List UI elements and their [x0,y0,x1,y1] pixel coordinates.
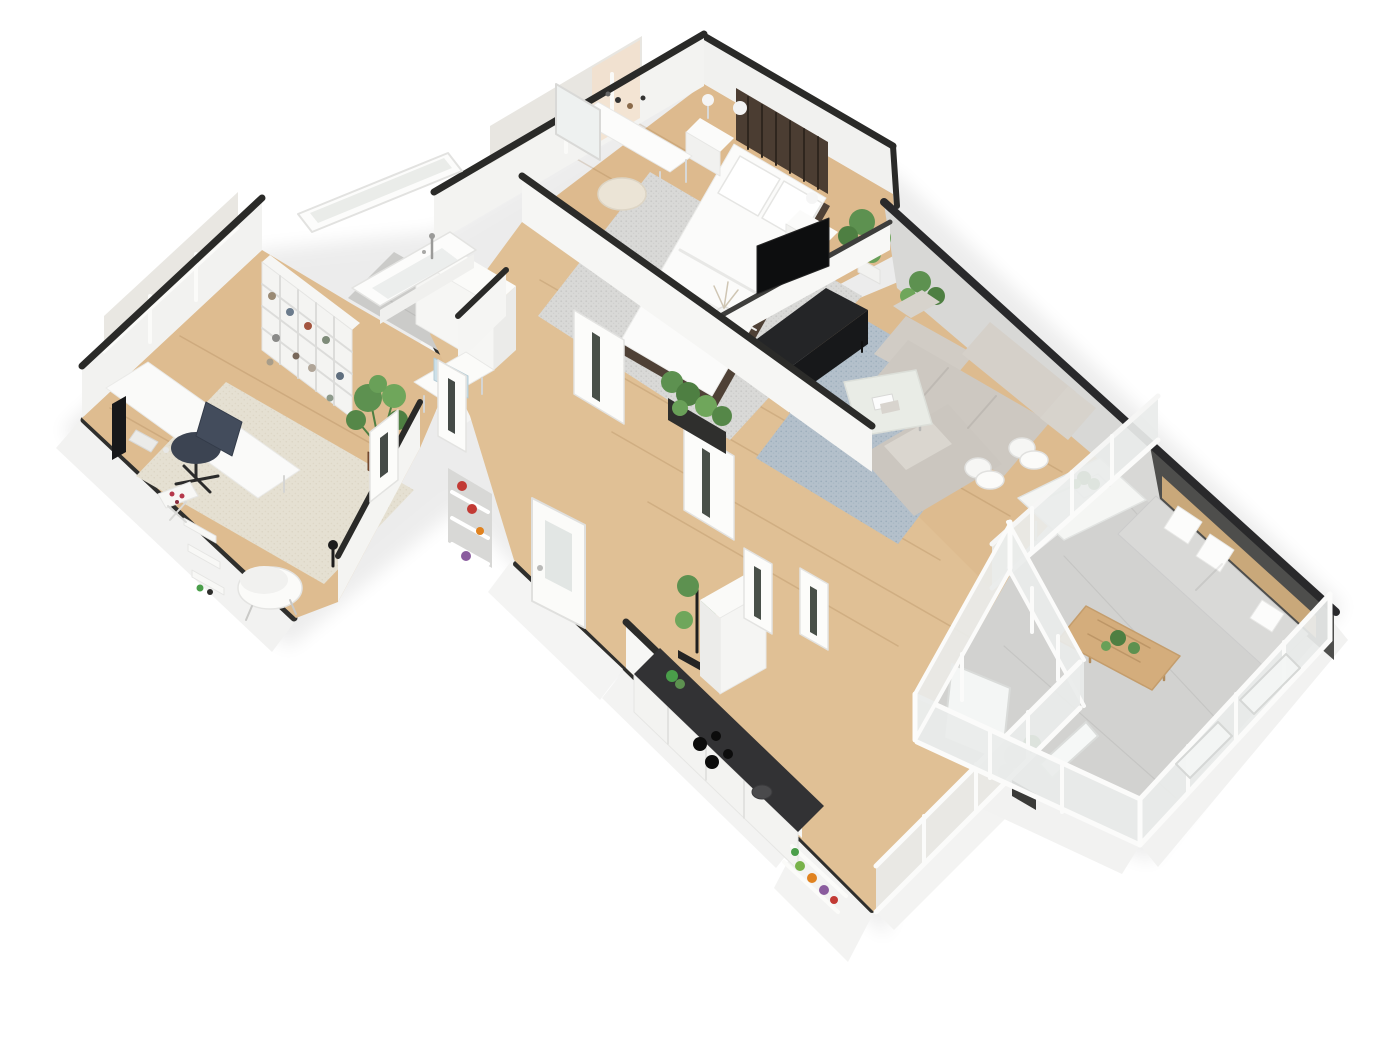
balcony-table-plants [1101,641,1111,651]
nightstand-left-lamp [702,94,714,106]
bookshelf-books [327,395,334,402]
vanity-cosmetics [606,92,611,97]
wall-bedroom-e-cap [893,146,897,206]
plant-stand-plants [675,611,693,629]
balcony-table-plants [1110,630,1126,646]
kitchen-shelf-items [830,896,838,904]
bookshelf-books [293,353,300,360]
kitchen-cooktop-burners [723,749,733,759]
planter-climbing-plants [712,406,732,426]
office-mouse [163,447,169,453]
bookshelf-books [322,336,330,344]
hall-door-upper-slit [754,566,761,620]
ladder-shelf-items [197,585,204,592]
bookshelf-books [267,359,274,366]
kitchen-counter-plant [666,670,678,682]
vanity-cosmetics [627,103,633,109]
bookshelf-books [308,364,316,372]
planter-climbing-plants [672,400,688,416]
ironing-board-pattern [175,500,179,504]
plant-stand-plants [677,575,699,597]
office-door-glass-slit [380,432,388,478]
lounge-chair-cushion [240,566,288,594]
kitchen-shelf-items [819,885,829,895]
shower-head [429,233,435,239]
bookshelf-books [286,308,294,316]
bookshelf-books [268,292,276,300]
bedroom-door-glass-slit [592,332,600,402]
bookshelf-books [336,372,344,380]
kitchen-cooktop-burners [705,755,719,769]
ironing-board-pattern [170,492,175,497]
kitchen-shelf-items [807,873,817,883]
floor-plan-3d-render [0,0,1400,1050]
kitchen-sink [752,785,772,799]
office-mouse [163,447,169,453]
vanity-cosmetics [615,97,621,103]
entry-door-handle [537,565,543,571]
monstera-leaves [346,410,366,430]
shoe-niche-items [461,551,471,561]
dining-chair-seat [976,471,1004,489]
floor-spotlight-head [328,540,338,550]
kitchen-counter-plant [675,679,685,689]
bookshelf-books [272,334,280,342]
dining-chair-seat [1020,451,1048,469]
entry-door-handle [537,565,543,571]
ironing-board-pattern [180,494,185,499]
shoe-niche-items [476,527,484,535]
nightstand-right-lamp [806,192,818,204]
kitchen-shelf-items [795,861,805,871]
vanity-cosmetics [641,96,646,101]
kitchen-cooktop-burners [693,737,707,751]
ladder-shelf-items [207,589,213,595]
living-room-door-glass-slit [702,448,710,518]
pendant-lamp [733,101,747,115]
hall-door-lower-slit [810,586,817,636]
pendant-lamp [733,101,747,115]
floor-spotlight-head [328,540,338,550]
floor-plan-canvas [0,0,1400,1050]
nightstand-left-lamp [702,94,714,106]
kitchen-shelf-items [791,848,799,856]
shoe-niche-items [457,481,467,491]
scene-root [56,34,1348,962]
monstera-leaves [369,375,387,393]
nightstand-right-lamp [806,192,818,204]
vanity-pouf [598,178,646,210]
kitchen-cooktop-burners [711,731,721,741]
shoe-niche-items [467,504,477,514]
shower-head [422,250,426,254]
bookshelf-books [304,322,312,330]
bathroom-door-glass-slit [448,378,455,434]
clerestory-window-glass [310,158,452,223]
office-monitor [112,396,126,460]
balcony-table-plants [1128,642,1140,654]
